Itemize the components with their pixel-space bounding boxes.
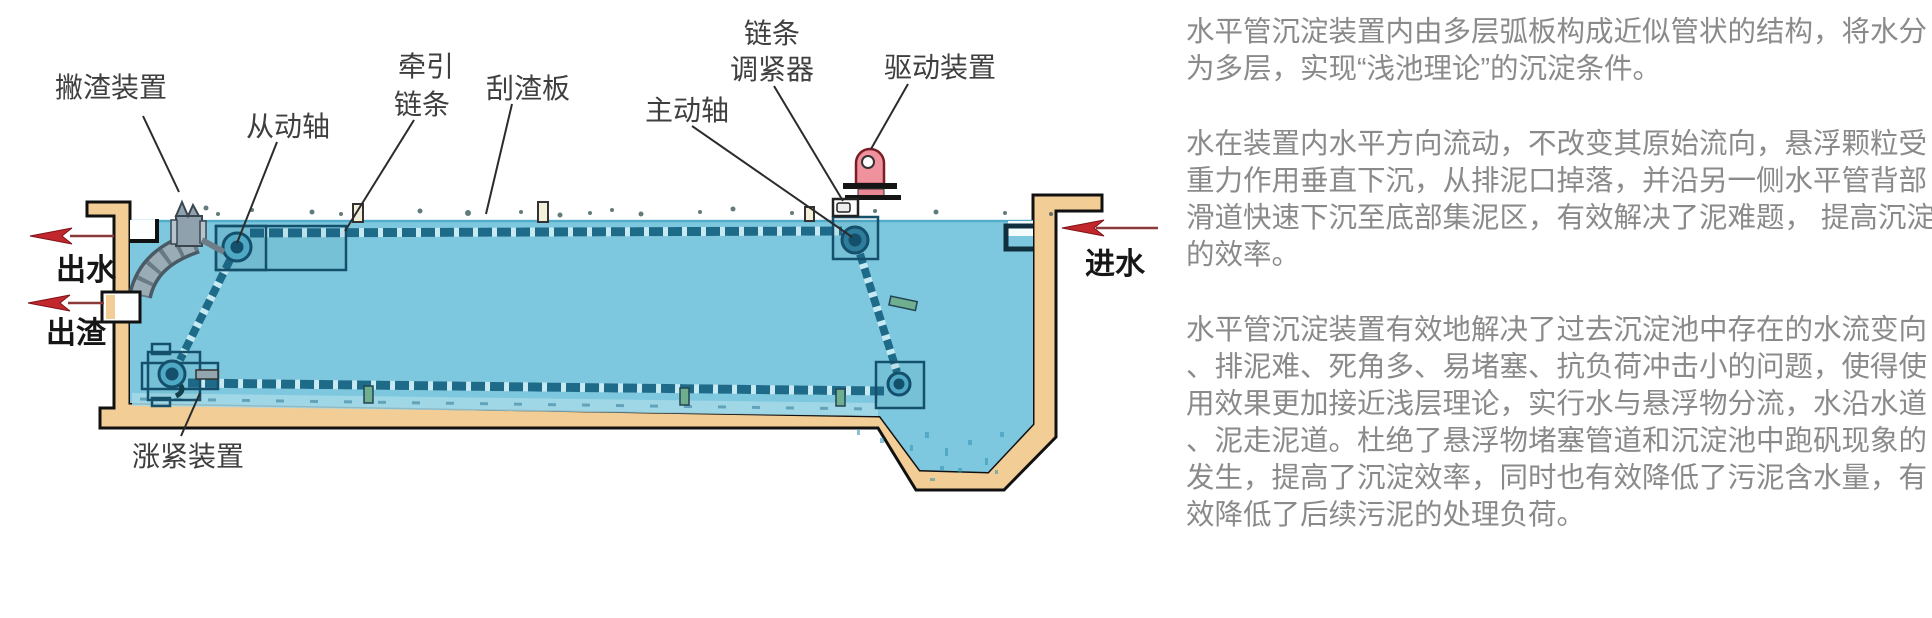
label-drive-unit: 驱动装置 [884, 52, 996, 83]
label-scraper-plate: 刮渣板 [486, 73, 570, 104]
outlet-weir [130, 219, 157, 241]
waterline-debris [204, 206, 1054, 218]
label-drive-shaft: 主动轴 [645, 95, 729, 126]
label-skimmer: 撇渣装置 [55, 72, 167, 103]
description-paragraph-3: 水平管沉淀装置有效地解决了过去沉淀池中存在的水流变向 、排泥难、死角多、易堵塞、… [1186, 312, 1932, 534]
water-out-arrow [30, 228, 114, 244]
description-paragraph-2: 水在装置内水平方向流动，不改变其原始流向，悬浮颗粒受 重力作用垂直下沉，从排泥口… [1186, 126, 1932, 274]
chain-adjuster [833, 199, 858, 216]
label-chain-tensioner-line1: 链条 [744, 18, 800, 49]
sedimentation-tank-diagram: 撇渣装置 从动轴 牵引 链条 刮渣板 主动轴 链条 调紧器 驱动装置 涨紧装置 … [0, 0, 1180, 618]
label-traction-chain-line1: 牵引 [398, 51, 454, 82]
label-slag-out: 出渣 [46, 317, 107, 350]
label-driven-shaft: 从动轴 [246, 111, 330, 142]
drive-unit-motor [843, 149, 901, 200]
slag-out-arrow [28, 295, 104, 311]
description-paragraph-1: 水平管沉淀装置内由多层弧板构成近似管状的结构，将水分 为多层，实现“浅池理论”的… [1186, 14, 1932, 88]
label-chain-tensioner-line2: 调紧器 [730, 54, 814, 85]
label-tension-device: 涨紧装置 [132, 441, 244, 472]
water-in-arrow [1062, 220, 1158, 236]
slag-outlet [102, 292, 140, 322]
description-text-block: 水平管沉淀装置内由多层弧板构成近似管状的结构，将水分 为多层，实现“浅池理论”的… [1186, 14, 1932, 572]
label-traction-chain-line2: 链条 [394, 89, 450, 120]
tensioner-arm [196, 370, 218, 379]
label-water-out: 出水 [56, 254, 117, 287]
label-water-in: 进水 [1085, 248, 1146, 281]
